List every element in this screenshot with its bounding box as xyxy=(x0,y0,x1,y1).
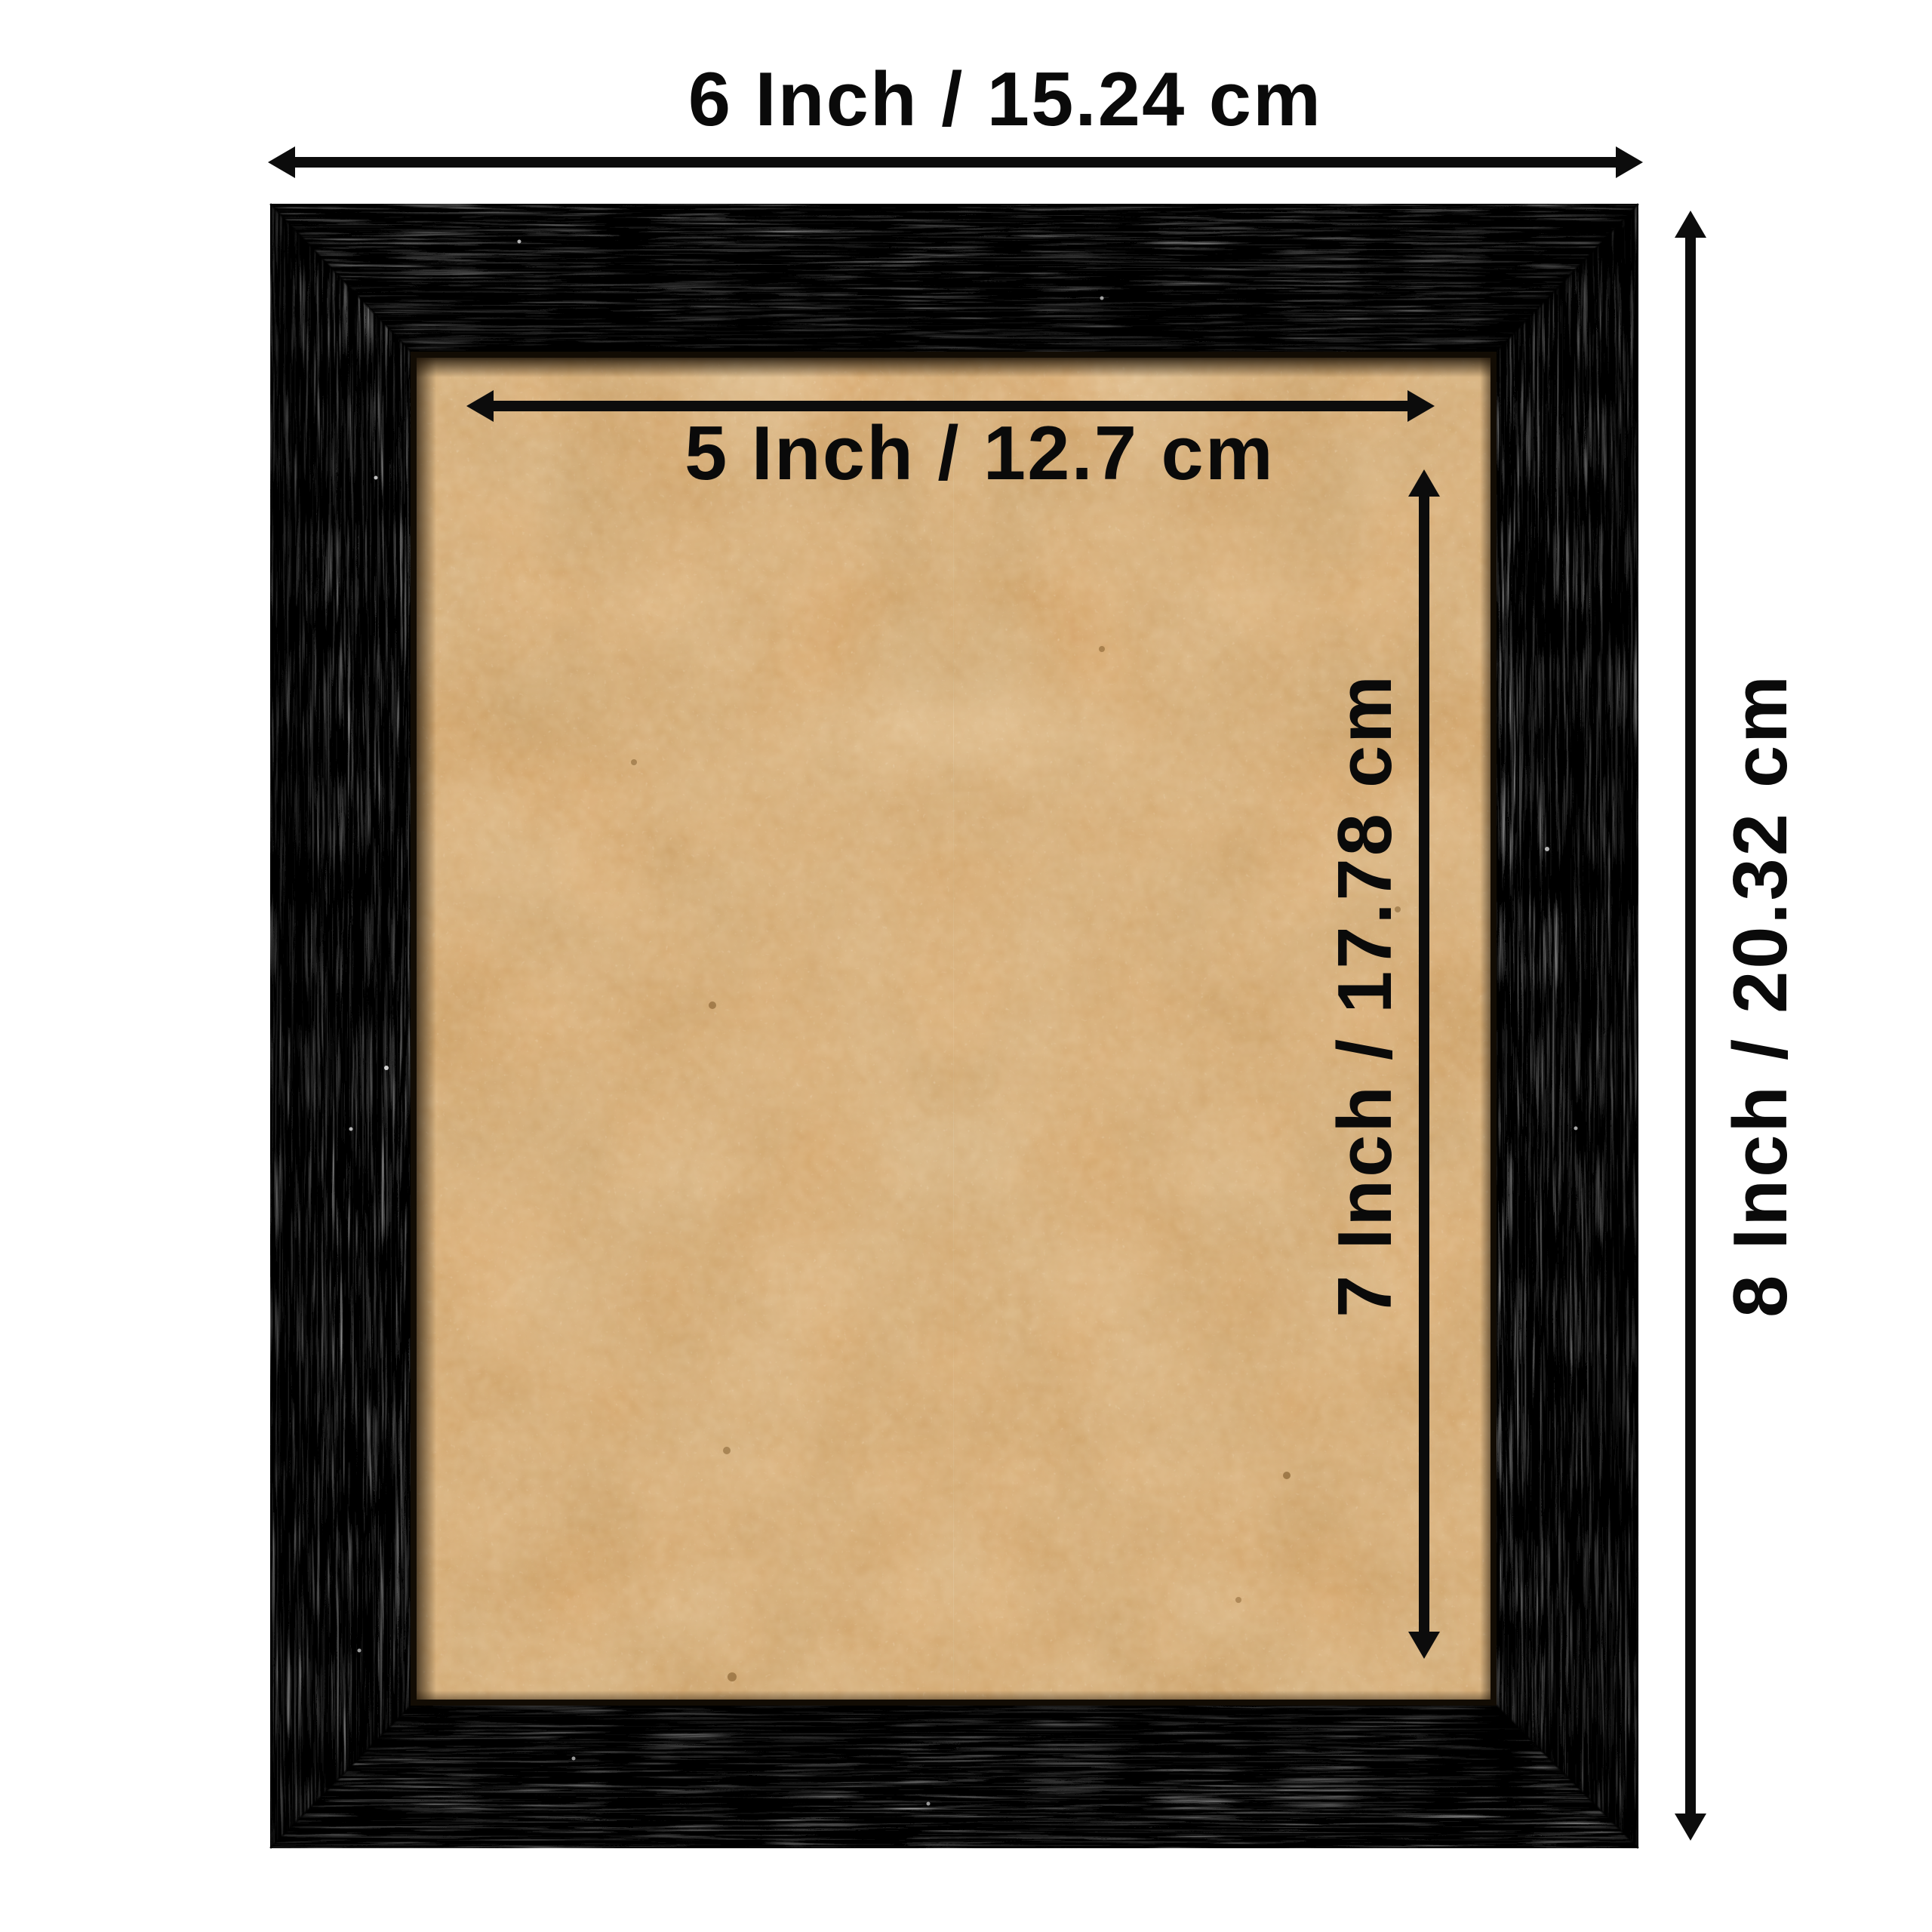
svg-text:8 Inch / 20.32 cm: 8 Inch / 20.32 cm xyxy=(1718,673,1803,1318)
svg-text:5 Inch / 12.7 cm: 5 Inch / 12.7 cm xyxy=(685,411,1275,496)
svg-text:6 Inch / 15.24 cm: 6 Inch / 15.24 cm xyxy=(688,57,1322,142)
svg-text:7 Inch / 17.78 cm: 7 Inch / 17.78 cm xyxy=(1323,673,1407,1318)
